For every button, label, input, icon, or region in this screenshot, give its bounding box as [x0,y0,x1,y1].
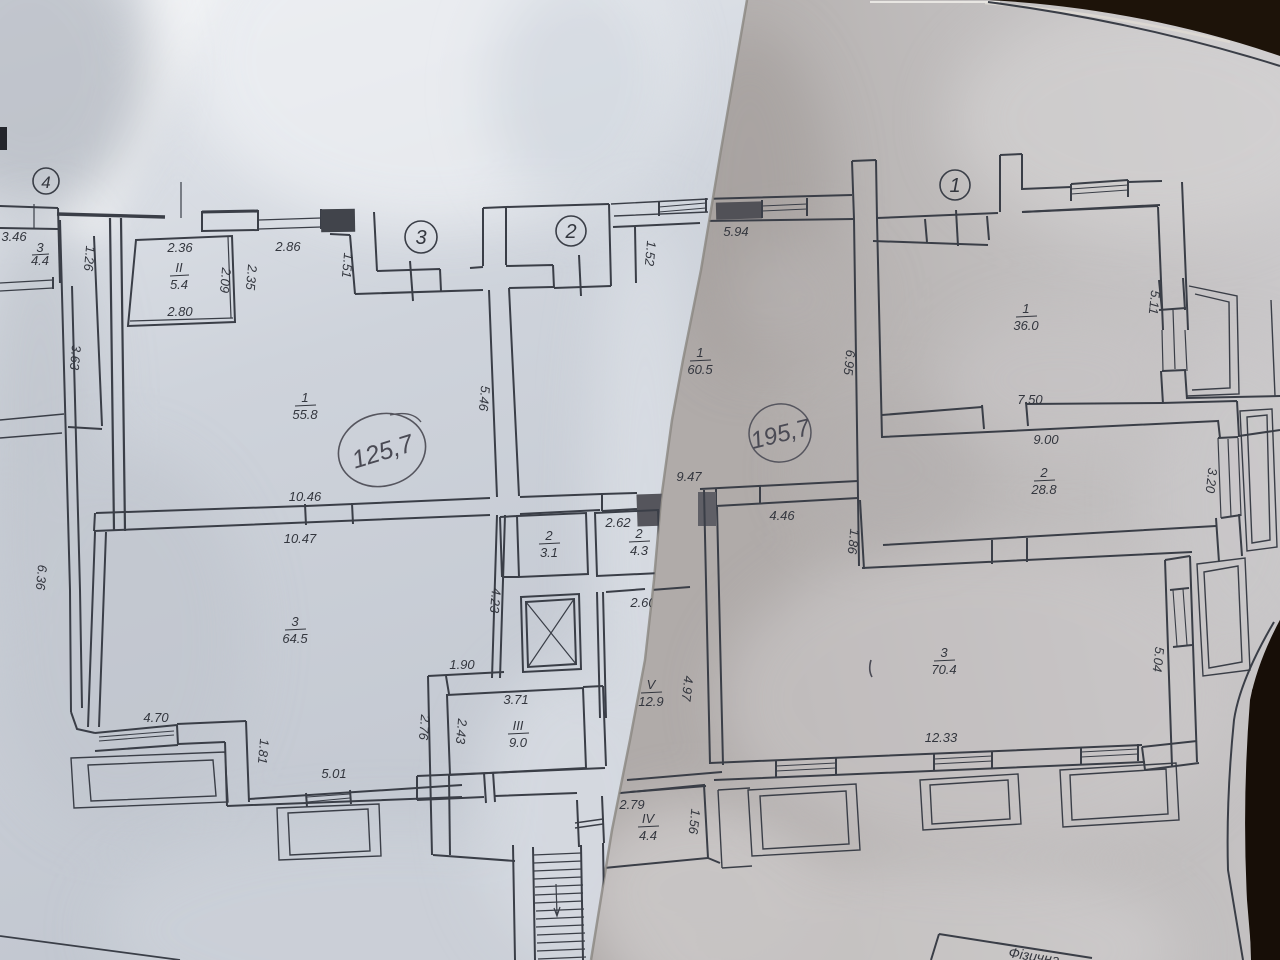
svg-text:1: 1 [1022,301,1029,316]
svg-text:1: 1 [301,390,308,405]
svg-text:2.43: 2.43 [453,717,470,745]
svg-text:64.5: 64.5 [282,631,308,646]
svg-text:3: 3 [291,614,299,629]
svg-text:9.47: 9.47 [676,469,702,484]
svg-text:1.90: 1.90 [449,657,475,672]
svg-text:4.46: 4.46 [769,508,795,523]
svg-text:IV: IV [642,811,656,826]
svg-text:3.71: 3.71 [503,692,528,707]
svg-text:4.70: 4.70 [143,710,169,725]
svg-text:V: V [647,677,657,692]
svg-text:2.79: 2.79 [618,797,644,812]
svg-text:4.4: 4.4 [639,828,657,843]
svg-text:3.20: 3.20 [1203,467,1221,494]
svg-text:4.97: 4.97 [679,675,697,702]
svg-text:4.23: 4.23 [487,587,504,614]
svg-text:2.62: 2.62 [604,515,631,530]
svg-text:2.36: 2.36 [166,240,193,255]
svg-text:2.80: 2.80 [166,304,193,319]
svg-text:2: 2 [1039,465,1048,480]
svg-text:3: 3 [940,645,948,660]
svg-text:2.76: 2.76 [416,713,433,741]
svg-text:4.3: 4.3 [630,543,649,558]
svg-text:10.46: 10.46 [289,489,322,504]
svg-text:5.11: 5.11 [1146,290,1163,316]
svg-text:3.1: 3.1 [540,545,558,560]
svg-text:2: 2 [634,526,643,541]
svg-text:7.50: 7.50 [1017,392,1043,407]
svg-text:70.4: 70.4 [931,662,956,677]
svg-text:5.46: 5.46 [476,385,493,412]
svg-text:1.81: 1.81 [255,738,272,765]
svg-text:12.9: 12.9 [638,694,663,709]
svg-text:3.46: 3.46 [1,229,27,244]
svg-text:12.33: 12.33 [925,730,958,745]
svg-text:1.86: 1.86 [845,528,863,555]
svg-text:28.8: 28.8 [1030,482,1057,497]
svg-text:1: 1 [696,345,703,360]
svg-text:1: 1 [949,175,960,197]
svg-text:5.94: 5.94 [723,224,748,239]
svg-text:II: II [175,260,183,275]
svg-text:6.95: 6.95 [841,349,859,376]
svg-text:55.8: 55.8 [292,407,318,422]
svg-text:1.56: 1.56 [686,808,704,835]
svg-text:5.4: 5.4 [170,277,188,292]
svg-text:III: III [513,718,524,733]
svg-text:3: 3 [415,227,426,249]
svg-text:4: 4 [41,173,50,192]
svg-text:3.63: 3.63 [67,344,84,371]
svg-text:4.4: 4.4 [31,253,49,268]
svg-text:5.01: 5.01 [321,766,346,781]
svg-text:5.04: 5.04 [1150,646,1168,673]
svg-text:2: 2 [544,528,553,543]
svg-text:60.5: 60.5 [687,362,713,377]
svg-text:36.0: 36.0 [1013,318,1039,333]
svg-text:2: 2 [564,221,576,243]
svg-text:1.51: 1.51 [339,252,356,279]
svg-text:6.36: 6.36 [33,564,50,591]
svg-text:9.0: 9.0 [509,735,528,750]
svg-text:1.52: 1.52 [642,240,659,267]
svg-text:9.00: 9.00 [1033,432,1059,447]
svg-text:10.47: 10.47 [284,531,317,546]
svg-text:2.09: 2.09 [217,266,234,294]
svg-text:2.35: 2.35 [243,263,260,291]
svg-text:2.86: 2.86 [274,239,301,254]
svg-text:1.26: 1.26 [81,245,98,272]
